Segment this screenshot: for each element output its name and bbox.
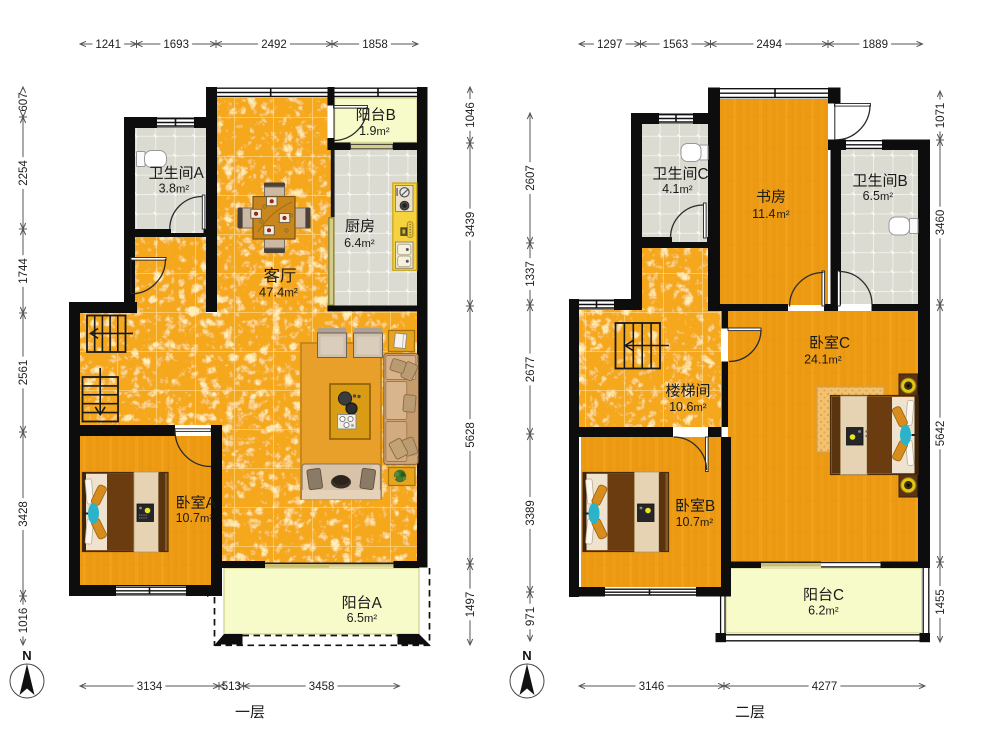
svg-text:m²: m² — [700, 517, 713, 529]
svg-text:2254: 2254 — [18, 160, 30, 186]
svg-text:1046: 1046 — [465, 102, 477, 128]
svg-text:2492: 2492 — [261, 39, 287, 51]
svg-text:A: A — [206, 495, 217, 512]
svg-text:m²: m² — [364, 613, 377, 625]
svg-text:m²: m² — [829, 354, 842, 366]
svg-text:B: B — [898, 173, 908, 190]
svg-text:6.5: 6.5 — [347, 611, 364, 625]
svg-text:1297: 1297 — [597, 39, 623, 51]
svg-text:m²: m² — [362, 238, 375, 250]
svg-text:3146: 3146 — [639, 681, 665, 693]
svg-text:6.5: 6.5 — [863, 189, 880, 203]
svg-text:1337: 1337 — [525, 261, 537, 287]
svg-text:3439: 3439 — [465, 212, 477, 238]
svg-text:C: C — [833, 587, 844, 604]
svg-text:1016: 1016 — [18, 608, 30, 634]
svg-text:4277: 4277 — [812, 681, 838, 693]
svg-text:m²: m² — [880, 191, 893, 203]
svg-text:6.4: 6.4 — [344, 236, 361, 250]
svg-text:24.1: 24.1 — [804, 352, 828, 366]
svg-text:2677: 2677 — [525, 357, 537, 383]
svg-text:1858: 1858 — [362, 39, 388, 51]
svg-text:m²: m² — [694, 402, 707, 414]
svg-text:2494: 2494 — [756, 39, 782, 51]
svg-text:1497: 1497 — [465, 592, 477, 618]
svg-text:47.4: 47.4 — [259, 285, 284, 300]
svg-text:1071: 1071 — [935, 103, 947, 129]
svg-text:3428: 3428 — [18, 501, 30, 527]
svg-text:971: 971 — [525, 607, 537, 626]
svg-text:10.7: 10.7 — [176, 511, 200, 525]
svg-text:C: C — [839, 335, 850, 352]
svg-text:A: A — [194, 165, 205, 182]
svg-text:513: 513 — [222, 681, 241, 693]
svg-text:607: 607 — [18, 92, 30, 111]
svg-text:1693: 1693 — [163, 39, 189, 51]
svg-text:m²: m² — [777, 209, 790, 221]
svg-text:N: N — [522, 648, 531, 663]
svg-text:6.2: 6.2 — [808, 603, 825, 617]
svg-text:m²: m² — [377, 126, 390, 138]
svg-text:3389: 3389 — [525, 500, 537, 526]
svg-text:4.1: 4.1 — [662, 182, 679, 196]
svg-text:m²: m² — [200, 513, 213, 525]
svg-text:1889: 1889 — [862, 39, 888, 51]
svg-text:N: N — [22, 648, 31, 663]
svg-text:m²: m² — [176, 183, 189, 195]
svg-text:C: C — [698, 166, 709, 183]
svg-text:1241: 1241 — [95, 39, 121, 51]
svg-text:5628: 5628 — [465, 422, 477, 448]
svg-text:m²: m² — [826, 605, 839, 617]
svg-text:10.6: 10.6 — [669, 400, 693, 414]
svg-text:1455: 1455 — [935, 589, 947, 615]
svg-text:m²: m² — [680, 184, 693, 196]
svg-text:3460: 3460 — [935, 210, 947, 236]
svg-text:B: B — [386, 107, 396, 124]
svg-text:m²: m² — [284, 287, 298, 300]
svg-text:2561: 2561 — [18, 360, 30, 386]
svg-text:B: B — [705, 498, 715, 515]
svg-text:1744: 1744 — [18, 258, 30, 284]
svg-text:1.9: 1.9 — [359, 124, 376, 138]
svg-text:2607: 2607 — [525, 165, 537, 191]
svg-text:5642: 5642 — [935, 421, 947, 447]
svg-text:10.7: 10.7 — [676, 515, 700, 529]
svg-text:3134: 3134 — [137, 681, 163, 693]
svg-text:11.4: 11.4 — [752, 207, 775, 221]
svg-text:3458: 3458 — [309, 681, 335, 693]
svg-text:A: A — [372, 595, 383, 612]
svg-text:3.8: 3.8 — [159, 181, 176, 195]
svg-text:1563: 1563 — [663, 39, 689, 51]
